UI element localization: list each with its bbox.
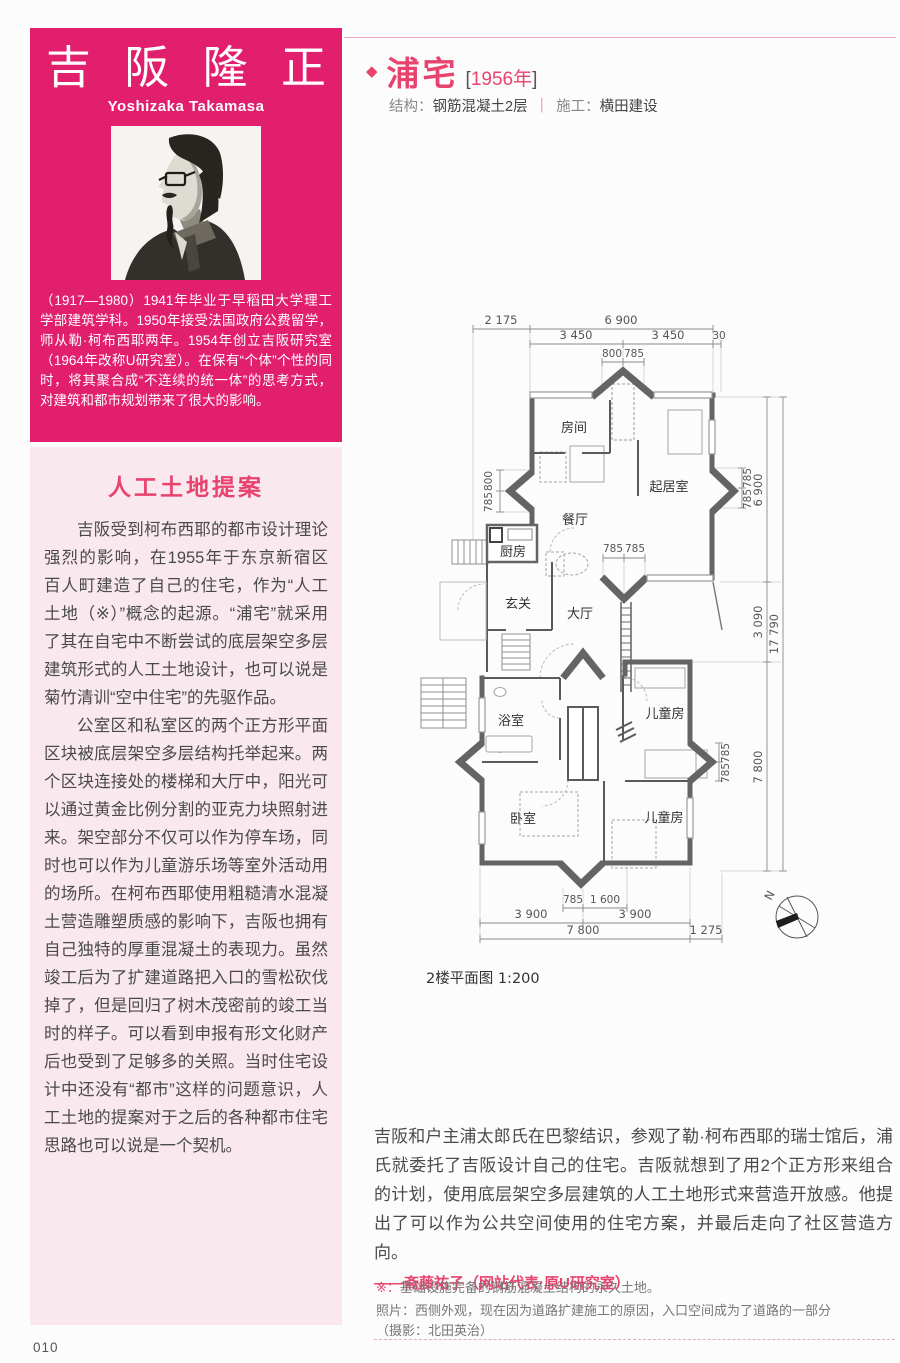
dim-label: 2 175: [485, 313, 518, 327]
commentary: 吉阪和户主浦太郎氏在巴黎结识，参观了勒·柯布西耶的瑞士馆后，浦氏就委托了吉阪设计…: [374, 1122, 893, 1294]
interior-walls: [482, 400, 688, 862]
project-header: ◆浦宅[1956年]: [366, 47, 537, 95]
dim-label: 3 900: [515, 907, 548, 921]
room-label-bedroom: 卧室: [510, 811, 536, 827]
outer-walls: [482, 395, 713, 863]
footnote-text: 基础设施完备的钢筋混凝土结构的永久土地。: [400, 1280, 660, 1295]
spec-structure-value: 钢筋混凝土2层: [433, 99, 528, 115]
diamond-bullet-icon: ◆: [366, 63, 378, 80]
dim-label: 800: [602, 348, 622, 360]
room-label-hall: 大厅: [567, 607, 593, 622]
dim-label: 785: [483, 492, 495, 512]
essay-panel: 人工土地提案 吉阪受到柯布西耶的都市设计理论强烈的影响，在1955年于东京新宿区…: [30, 447, 342, 1325]
dim-label: 3 450: [560, 328, 593, 342]
room-label-entry: 玄关: [505, 597, 531, 612]
architect-name: 吉 阪 隆 正: [30, 28, 342, 91]
essay-paragraph-2: 公室区和私室区的两个正方形平面区块被底层架空多层结构托举起来。两个区块连接处的楼…: [44, 712, 328, 1160]
room-label-dining: 餐厅: [562, 512, 588, 528]
dim-label: 3 450: [652, 328, 685, 342]
footer-rule: [374, 1339, 895, 1340]
photo-note-line2: （摄影：北田英治）: [376, 1321, 831, 1341]
north-label: N: [761, 888, 777, 902]
architect-portrait: [111, 126, 261, 280]
project-spec: 结构：钢筋混凝土2层｜施工：横田建设: [389, 95, 658, 116]
dim-label: 785: [563, 894, 583, 906]
dim-label: 785: [720, 743, 732, 763]
dim-label: 800: [483, 471, 495, 491]
hall-ladder: [621, 602, 631, 692]
stairs: [421, 540, 530, 728]
floor-plan-drawing: 2 175 6 900 3 450 3 450 30 800 785 800 7…: [420, 300, 900, 1000]
page-number: 010: [33, 1340, 59, 1355]
light-shaft: [612, 384, 634, 440]
plan-caption: 2楼平面图 1:200: [426, 970, 540, 987]
commentary-paragraph: 吉阪和户主浦太郎氏在巴黎结识，参观了勒·柯布西耶的瑞士馆后，浦氏就委托了吉阪设计…: [374, 1127, 893, 1262]
dim-label: 6 900: [751, 474, 765, 507]
room-label-living: 起居室: [649, 479, 688, 495]
header-rule: [344, 37, 896, 38]
dim-label: 17 790: [767, 614, 781, 654]
dim-label: 785: [624, 348, 644, 360]
portrait-illustration: [111, 126, 261, 280]
spec-structure-label: 结构：: [389, 99, 433, 115]
spec-divider: ｜: [528, 99, 557, 115]
dim-label: 3 900: [619, 907, 652, 921]
room-label-kitchen: 厨房: [500, 544, 526, 560]
architect-name-romanized: Yoshizaka Takamasa: [30, 98, 342, 115]
dim-label: 785: [720, 763, 732, 783]
footnote: ※：基础设施完备的钢筋混凝土结构的永久土地。: [376, 1277, 660, 1296]
spec-builder-value: 横田建设: [600, 99, 658, 115]
architect-name-char: 隆: [203, 44, 248, 91]
room-label-child-top: 儿童房: [645, 706, 684, 722]
dim-label: 785: [625, 543, 645, 555]
north-compass-icon: N: [761, 888, 818, 938]
photo-note-line1: 照片：西侧外观，现在因为道路扩建施工的原因，入口空间成为了道路的一部分: [376, 1301, 831, 1321]
dim-label: 1 275: [690, 923, 723, 937]
photo-note: 照片：西侧外观，现在因为道路扩建施工的原因，入口空间成为了道路的一部分 （摄影：…: [376, 1301, 831, 1341]
room-label-bath: 浴室: [498, 713, 524, 729]
footnote-marker: ※：: [376, 1280, 400, 1295]
architect-name-char: 正: [281, 44, 326, 91]
dim-label: 785: [603, 543, 623, 555]
architect-name-char: 阪: [124, 44, 169, 91]
project-year: [1956年]: [466, 69, 538, 90]
dim-label: 3 090: [751, 606, 765, 639]
architect-name-char: 吉: [46, 44, 91, 91]
dim-label: 6 900: [605, 313, 638, 327]
essay-paragraph-1: 吉阪受到柯布西耶的都市设计理论强烈的影响，在1955年于东京新宿区百人町建造了自…: [44, 516, 328, 712]
room-label-child-bottom: 儿童房: [644, 810, 683, 826]
essay-title: 人工土地提案: [30, 447, 342, 502]
dim-label: 7 800: [751, 751, 765, 784]
spec-builder-label: 施工：: [556, 99, 600, 115]
dim-label: 7 800: [567, 923, 600, 937]
balcony-brace: [713, 582, 722, 630]
architect-bio: （1917—1980）1941年毕业于早稻田大学理工学部建筑学科。1950年接受…: [40, 291, 332, 411]
floor-plan: 2 175 6 900 3 450 3 450 30 800 785 800 7…: [420, 300, 900, 1000]
room-label-room: 房间: [561, 420, 587, 436]
dim-label: 1 600: [590, 894, 620, 906]
dim-label: 30: [712, 330, 725, 342]
architect-panel: 吉 阪 隆 正 Yoshizaka Takamasa （1917—1980）19…: [30, 28, 342, 442]
dimension-labels: 2 175 6 900 3 450 3 450 30 800 785 800 7…: [483, 313, 781, 937]
project-title: 浦宅: [387, 55, 459, 92]
